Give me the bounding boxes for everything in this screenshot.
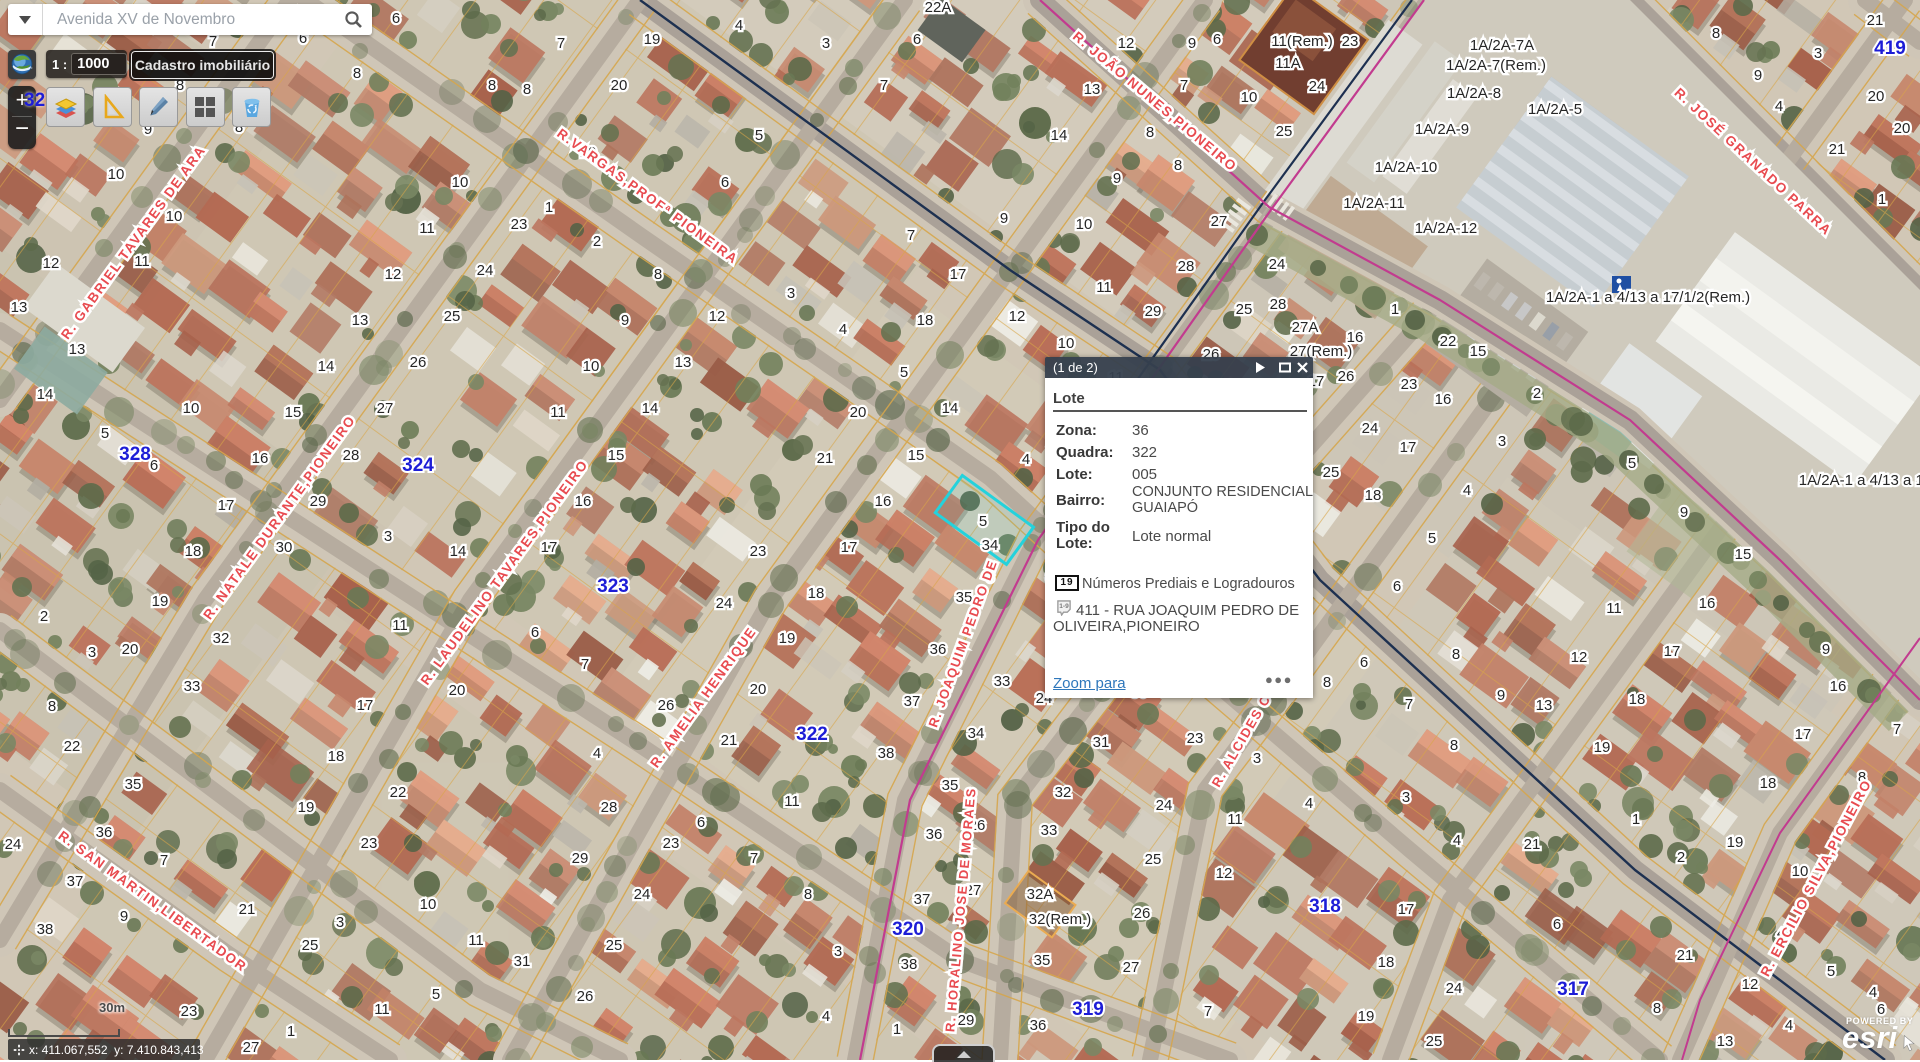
svg-text:11: 11 bbox=[374, 1001, 390, 1018]
svg-text:28: 28 bbox=[601, 799, 618, 816]
svg-text:36: 36 bbox=[930, 641, 947, 658]
svg-text:7: 7 bbox=[581, 656, 589, 673]
svg-text:7: 7 bbox=[1893, 721, 1901, 738]
svg-text:20: 20 bbox=[611, 77, 628, 94]
svg-text:15: 15 bbox=[608, 447, 625, 464]
svg-text:37: 37 bbox=[904, 693, 921, 710]
svg-text:14: 14 bbox=[642, 400, 659, 417]
svg-text:4: 4 bbox=[735, 17, 743, 34]
svg-text:1A/2A-11: 1A/2A-11 bbox=[1343, 195, 1404, 212]
svg-text:32: 32 bbox=[213, 630, 230, 647]
svg-text:23: 23 bbox=[181, 1003, 198, 1020]
svg-text:21: 21 bbox=[239, 901, 256, 918]
svg-text:11: 11 bbox=[134, 253, 150, 270]
svg-text:10: 10 bbox=[1058, 335, 1075, 352]
svg-text:7: 7 bbox=[160, 852, 168, 869]
svg-text:17: 17 bbox=[541, 539, 558, 556]
svg-text:320: 320 bbox=[892, 919, 924, 940]
svg-text:29: 29 bbox=[572, 850, 589, 867]
svg-text:17: 17 bbox=[357, 697, 374, 714]
svg-text:22: 22 bbox=[64, 738, 81, 755]
svg-text:10: 10 bbox=[583, 358, 600, 375]
svg-text:7: 7 bbox=[209, 33, 217, 50]
svg-text:17: 17 bbox=[950, 266, 967, 283]
svg-text:16: 16 bbox=[1699, 595, 1716, 612]
svg-text:17: 17 bbox=[1664, 643, 1681, 660]
svg-text:34: 34 bbox=[982, 537, 999, 554]
svg-text:5: 5 bbox=[101, 425, 109, 442]
svg-text:17: 17 bbox=[1398, 901, 1415, 918]
svg-text:12: 12 bbox=[1118, 35, 1135, 52]
svg-text:24: 24 bbox=[1269, 256, 1286, 273]
svg-text:6: 6 bbox=[1213, 31, 1221, 48]
svg-text:10: 10 bbox=[1241, 89, 1258, 106]
svg-text:11: 11 bbox=[419, 220, 435, 237]
svg-text:16: 16 bbox=[1435, 391, 1452, 408]
svg-text:9: 9 bbox=[1000, 210, 1008, 227]
svg-text:5: 5 bbox=[1428, 530, 1436, 547]
svg-text:11: 11 bbox=[1227, 811, 1243, 828]
svg-text:36: 36 bbox=[96, 824, 113, 841]
svg-text:13: 13 bbox=[352, 312, 369, 329]
svg-text:36: 36 bbox=[1030, 1017, 1047, 1034]
svg-text:9: 9 bbox=[1188, 35, 1196, 52]
svg-text:1A/2A-12: 1A/2A-12 bbox=[1415, 220, 1478, 237]
svg-text:12: 12 bbox=[709, 308, 726, 325]
svg-text:38: 38 bbox=[37, 921, 54, 938]
svg-text:7: 7 bbox=[907, 227, 915, 244]
svg-text:8: 8 bbox=[353, 65, 361, 82]
svg-text:27A: 27A bbox=[1292, 319, 1319, 336]
svg-text:3: 3 bbox=[88, 644, 96, 661]
svg-text:17: 17 bbox=[1795, 726, 1812, 743]
svg-text:22: 22 bbox=[1440, 333, 1457, 350]
svg-text:25: 25 bbox=[302, 937, 319, 954]
svg-text:20: 20 bbox=[850, 404, 867, 421]
svg-text:27: 27 bbox=[377, 400, 394, 417]
svg-text:35: 35 bbox=[942, 777, 959, 794]
svg-text:9: 9 bbox=[1680, 504, 1688, 521]
svg-text:24: 24 bbox=[716, 595, 733, 612]
svg-text:19: 19 bbox=[644, 31, 661, 48]
svg-text:21: 21 bbox=[1867, 12, 1884, 29]
svg-text:26: 26 bbox=[1338, 368, 1355, 385]
svg-text:20: 20 bbox=[1894, 120, 1911, 137]
svg-text:5: 5 bbox=[432, 986, 440, 1003]
svg-text:4: 4 bbox=[1463, 482, 1471, 499]
svg-text:15: 15 bbox=[908, 447, 925, 464]
svg-text:12: 12 bbox=[43, 255, 60, 272]
svg-text:1A/2A-8: 1A/2A-8 bbox=[1447, 85, 1501, 102]
svg-text:8: 8 bbox=[804, 886, 812, 903]
svg-text:5: 5 bbox=[755, 127, 763, 144]
svg-text:419: 419 bbox=[1874, 38, 1906, 59]
svg-text:1A/2A-7A: 1A/2A-7A bbox=[1470, 37, 1534, 54]
svg-text:1A/2A-5: 1A/2A-5 bbox=[1528, 101, 1582, 118]
svg-text:18: 18 bbox=[328, 748, 345, 765]
svg-text:17: 17 bbox=[841, 539, 858, 556]
svg-text:10: 10 bbox=[420, 896, 437, 913]
svg-text:25: 25 bbox=[444, 308, 461, 325]
svg-text:32(Rem.): 32(Rem.) bbox=[1029, 911, 1092, 928]
svg-text:1: 1 bbox=[1391, 301, 1399, 318]
svg-text:9: 9 bbox=[1113, 170, 1121, 187]
svg-text:20: 20 bbox=[1868, 88, 1885, 105]
svg-text:36: 36 bbox=[926, 826, 943, 843]
svg-text:7: 7 bbox=[750, 850, 758, 867]
svg-text:3: 3 bbox=[787, 285, 795, 302]
svg-text:13: 13 bbox=[1536, 697, 1553, 714]
svg-text:23: 23 bbox=[361, 835, 378, 852]
svg-text:6: 6 bbox=[531, 624, 539, 641]
svg-text:11(Rem.): 11(Rem.) bbox=[1271, 33, 1332, 50]
svg-text:31: 31 bbox=[1093, 734, 1110, 751]
svg-text:23: 23 bbox=[1401, 376, 1418, 393]
svg-text:19: 19 bbox=[1358, 1008, 1375, 1025]
svg-text:1: 1 bbox=[1878, 191, 1886, 208]
svg-text:28: 28 bbox=[343, 447, 360, 464]
svg-text:8: 8 bbox=[1146, 124, 1154, 141]
svg-text:23: 23 bbox=[1342, 33, 1359, 50]
svg-text:13: 13 bbox=[69, 341, 86, 358]
svg-text:4: 4 bbox=[1305, 795, 1313, 812]
svg-text:9: 9 bbox=[1822, 641, 1830, 658]
svg-text:15: 15 bbox=[1470, 343, 1487, 360]
svg-text:19: 19 bbox=[779, 630, 796, 647]
svg-text:3: 3 bbox=[1402, 789, 1410, 806]
svg-text:25: 25 bbox=[1276, 123, 1293, 140]
svg-text:1: 1 bbox=[545, 199, 553, 216]
svg-text:8: 8 bbox=[1452, 646, 1460, 663]
svg-text:21: 21 bbox=[1829, 141, 1846, 158]
svg-text:7: 7 bbox=[880, 77, 888, 94]
svg-text:1A/2A-1 a 4/13 a 17/1/2(Rem.): 1A/2A-1 a 4/13 a 17/1/2(Rem.) bbox=[1546, 289, 1750, 306]
svg-text:32A: 32A bbox=[1027, 886, 1054, 903]
svg-text:18: 18 bbox=[1378, 954, 1395, 971]
svg-text:1A/2A-9: 1A/2A-9 bbox=[1415, 121, 1469, 138]
svg-text:3: 3 bbox=[822, 35, 830, 52]
svg-text:14: 14 bbox=[450, 543, 467, 560]
svg-text:10: 10 bbox=[1792, 863, 1809, 880]
svg-text:20: 20 bbox=[750, 681, 767, 698]
svg-text:12: 12 bbox=[385, 266, 402, 283]
svg-text:25: 25 bbox=[1236, 301, 1253, 318]
svg-text:21: 21 bbox=[1524, 836, 1541, 853]
svg-text:27: 27 bbox=[243, 1039, 260, 1056]
svg-text:1: 1 bbox=[893, 1021, 901, 1038]
svg-text:25: 25 bbox=[1145, 851, 1162, 868]
svg-text:3: 3 bbox=[834, 943, 842, 960]
svg-text:16: 16 bbox=[1830, 678, 1847, 695]
svg-text:26: 26 bbox=[1134, 905, 1151, 922]
svg-text:33: 33 bbox=[184, 678, 201, 695]
svg-text:16: 16 bbox=[875, 493, 892, 510]
svg-text:27: 27 bbox=[1211, 213, 1228, 230]
svg-text:1A/2A-10: 1A/2A-10 bbox=[1375, 159, 1438, 176]
svg-text:37: 37 bbox=[67, 873, 84, 890]
svg-text:1: 1 bbox=[287, 1023, 295, 1040]
svg-text:15: 15 bbox=[1735, 546, 1752, 563]
svg-text:5: 5 bbox=[900, 364, 908, 381]
svg-text:25: 25 bbox=[1426, 1033, 1443, 1050]
svg-text:6: 6 bbox=[721, 174, 729, 191]
svg-text:31: 31 bbox=[514, 953, 531, 970]
svg-text:30: 30 bbox=[276, 539, 293, 556]
svg-text:5: 5 bbox=[1827, 963, 1835, 980]
svg-text:8: 8 bbox=[1712, 25, 1720, 42]
svg-text:2: 2 bbox=[1677, 849, 1685, 866]
svg-text:11A: 11A bbox=[1275, 55, 1301, 72]
svg-text:18: 18 bbox=[1629, 691, 1646, 708]
svg-text:8: 8 bbox=[1174, 157, 1182, 174]
svg-text:1: 1 bbox=[1632, 811, 1640, 828]
svg-text:6: 6 bbox=[392, 10, 400, 27]
svg-text:19: 19 bbox=[1594, 739, 1611, 756]
svg-text:24: 24 bbox=[1446, 980, 1463, 997]
svg-text:15: 15 bbox=[285, 404, 302, 421]
svg-text:29: 29 bbox=[1145, 303, 1162, 320]
svg-text:10: 10 bbox=[108, 166, 125, 183]
svg-text:24: 24 bbox=[1362, 420, 1379, 437]
svg-text:18: 18 bbox=[1365, 487, 1382, 504]
svg-text:7: 7 bbox=[1405, 696, 1413, 713]
svg-text:6: 6 bbox=[1360, 654, 1368, 671]
svg-text:7: 7 bbox=[1180, 77, 1188, 94]
svg-text:18: 18 bbox=[917, 312, 934, 329]
svg-text:12: 12 bbox=[1216, 865, 1233, 882]
svg-text:8: 8 bbox=[523, 81, 531, 98]
svg-text:322: 322 bbox=[796, 724, 828, 745]
svg-text:25: 25 bbox=[606, 937, 623, 954]
svg-text:24: 24 bbox=[1309, 78, 1326, 95]
svg-text:2: 2 bbox=[1533, 385, 1541, 402]
svg-text:29: 29 bbox=[310, 493, 327, 510]
svg-text:11: 11 bbox=[784, 793, 800, 810]
svg-text:8: 8 bbox=[1450, 737, 1458, 754]
svg-text:4: 4 bbox=[1775, 98, 1783, 115]
svg-text:3: 3 bbox=[336, 914, 344, 931]
svg-text:6: 6 bbox=[913, 31, 921, 48]
svg-text:28: 28 bbox=[1270, 296, 1287, 313]
svg-text:23: 23 bbox=[1187, 730, 1204, 747]
svg-text:11: 11 bbox=[392, 617, 408, 634]
svg-text:18: 18 bbox=[1760, 775, 1777, 792]
svg-text:6: 6 bbox=[1393, 578, 1401, 595]
svg-text:33: 33 bbox=[1041, 822, 1058, 839]
svg-text:7: 7 bbox=[557, 35, 565, 52]
svg-text:3: 3 bbox=[1814, 45, 1822, 62]
svg-text:14: 14 bbox=[318, 358, 335, 375]
svg-text:37: 37 bbox=[914, 891, 931, 908]
svg-text:14: 14 bbox=[37, 386, 54, 403]
svg-text:11: 11 bbox=[1606, 600, 1622, 617]
svg-text:21: 21 bbox=[721, 732, 738, 749]
svg-text:16: 16 bbox=[575, 493, 592, 510]
svg-text:13: 13 bbox=[675, 354, 692, 371]
svg-text:13: 13 bbox=[1084, 81, 1101, 98]
svg-text:12: 12 bbox=[1009, 308, 1026, 325]
svg-text:4: 4 bbox=[1453, 832, 1461, 849]
svg-text:26: 26 bbox=[577, 988, 594, 1005]
svg-text:328: 328 bbox=[119, 444, 151, 465]
svg-text:6: 6 bbox=[697, 814, 705, 831]
svg-text:19: 19 bbox=[152, 593, 169, 610]
svg-text:25: 25 bbox=[1323, 464, 1340, 481]
svg-text:10: 10 bbox=[166, 208, 183, 225]
svg-text:18: 18 bbox=[185, 543, 202, 560]
svg-text:11: 11 bbox=[1096, 279, 1112, 296]
svg-text:21: 21 bbox=[817, 450, 834, 467]
svg-text:8: 8 bbox=[488, 77, 496, 94]
svg-text:24: 24 bbox=[477, 262, 494, 279]
svg-text:26: 26 bbox=[658, 697, 675, 714]
svg-text:4: 4 bbox=[1785, 1017, 1793, 1034]
svg-text:319: 319 bbox=[1072, 999, 1104, 1020]
svg-text:3: 3 bbox=[1498, 433, 1506, 450]
svg-text:6: 6 bbox=[150, 457, 158, 474]
svg-text:323: 323 bbox=[597, 576, 629, 597]
svg-text:1A/2A-1 a 4/13 a 17/1/2: 1A/2A-1 a 4/13 a 17/1/2 bbox=[1799, 472, 1920, 489]
svg-text:26: 26 bbox=[410, 354, 427, 371]
svg-text:2: 2 bbox=[40, 608, 48, 625]
svg-text:32: 32 bbox=[1055, 784, 1072, 801]
svg-text:9: 9 bbox=[621, 312, 629, 329]
svg-text:11: 11 bbox=[550, 404, 566, 421]
svg-text:5: 5 bbox=[1628, 455, 1636, 472]
svg-text:6: 6 bbox=[1553, 916, 1561, 933]
svg-text:10: 10 bbox=[183, 400, 200, 417]
svg-text:29: 29 bbox=[958, 1012, 975, 1029]
svg-text:27: 27 bbox=[1123, 959, 1140, 976]
svg-text:10: 10 bbox=[1076, 216, 1093, 233]
svg-text:12: 12 bbox=[1571, 649, 1588, 666]
svg-text:8: 8 bbox=[48, 698, 56, 715]
svg-text:3: 3 bbox=[384, 528, 392, 545]
svg-text:1A/2A-7(Rem.): 1A/2A-7(Rem.) bbox=[1446, 57, 1546, 74]
svg-text:33: 33 bbox=[994, 673, 1011, 690]
svg-text:14: 14 bbox=[942, 400, 959, 417]
svg-text:13: 13 bbox=[1717, 1033, 1734, 1050]
svg-text:324: 324 bbox=[402, 455, 434, 476]
svg-text:14: 14 bbox=[1051, 127, 1068, 144]
svg-text:38: 38 bbox=[878, 745, 895, 762]
svg-text:317: 317 bbox=[1557, 979, 1589, 1000]
svg-text:1-9: 1-9 bbox=[1059, 603, 1069, 610]
svg-text:8: 8 bbox=[1323, 674, 1331, 691]
svg-text:17: 17 bbox=[218, 497, 235, 514]
svg-text:28: 28 bbox=[1178, 258, 1195, 275]
svg-text:19: 19 bbox=[1727, 834, 1744, 851]
svg-text:11: 11 bbox=[468, 932, 484, 949]
svg-text:318: 318 bbox=[1309, 896, 1341, 917]
svg-text:3: 3 bbox=[1253, 750, 1261, 767]
svg-text:21: 21 bbox=[1677, 947, 1694, 964]
svg-text:17: 17 bbox=[1400, 439, 1417, 456]
svg-text:34: 34 bbox=[968, 725, 985, 742]
svg-text:22: 22 bbox=[390, 784, 407, 801]
svg-text:9: 9 bbox=[120, 908, 128, 925]
svg-text:7: 7 bbox=[1204, 1003, 1212, 1020]
svg-text:4: 4 bbox=[1022, 451, 1030, 468]
svg-text:20: 20 bbox=[122, 641, 139, 658]
svg-text:22A: 22A bbox=[925, 0, 952, 16]
svg-text:35: 35 bbox=[125, 776, 142, 793]
svg-text:16: 16 bbox=[252, 450, 269, 467]
svg-text:9: 9 bbox=[1754, 67, 1762, 84]
svg-text:13: 13 bbox=[11, 299, 28, 316]
svg-text:18: 18 bbox=[808, 585, 825, 602]
svg-text:4: 4 bbox=[839, 321, 847, 338]
svg-text:20: 20 bbox=[449, 682, 466, 699]
svg-text:2: 2 bbox=[593, 233, 601, 250]
svg-text:9: 9 bbox=[1497, 687, 1505, 704]
svg-text:23: 23 bbox=[511, 216, 528, 233]
svg-text:5: 5 bbox=[979, 513, 987, 530]
svg-text:38: 38 bbox=[901, 956, 918, 973]
svg-text:23: 23 bbox=[663, 835, 680, 852]
svg-text:35: 35 bbox=[1034, 952, 1051, 969]
svg-text:24: 24 bbox=[5, 836, 22, 853]
svg-text:8: 8 bbox=[654, 266, 662, 283]
svg-text:8: 8 bbox=[1653, 1000, 1661, 1017]
svg-text:24: 24 bbox=[634, 886, 651, 903]
svg-text:12: 12 bbox=[1742, 976, 1759, 993]
svg-text:4: 4 bbox=[593, 745, 601, 762]
svg-text:4: 4 bbox=[822, 1008, 830, 1025]
svg-text:10: 10 bbox=[452, 174, 469, 191]
svg-text:4: 4 bbox=[1869, 984, 1877, 1001]
svg-text:24: 24 bbox=[1156, 797, 1173, 814]
svg-text:19: 19 bbox=[298, 799, 315, 816]
svg-text:23: 23 bbox=[750, 543, 767, 560]
